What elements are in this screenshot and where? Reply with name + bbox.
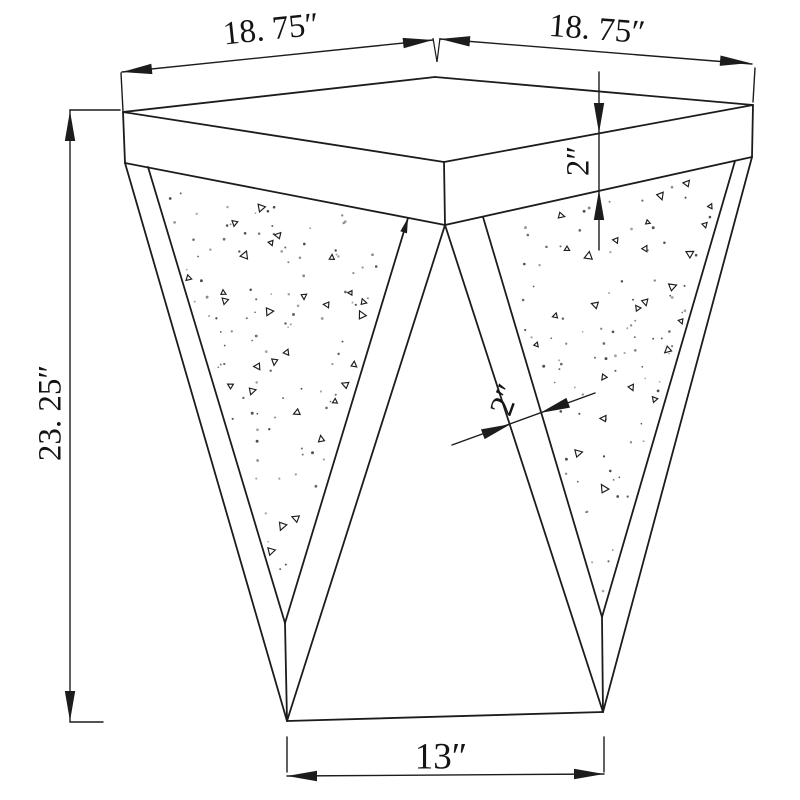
sparkle-dot — [608, 292, 610, 294]
sparkle-dot — [215, 317, 217, 319]
sparkle-dot — [634, 320, 636, 322]
sparkle-dot — [256, 413, 258, 415]
sparkle-dot — [209, 248, 212, 251]
sparkle-dot — [256, 440, 259, 443]
sparkle-dot — [352, 302, 354, 304]
apron-right-corner-edge — [752, 105, 753, 157]
sparkle-dot — [654, 279, 656, 281]
sparkle-dot — [582, 393, 584, 395]
sparkle-dot — [255, 335, 258, 338]
sparkle-dot — [292, 313, 295, 316]
sparkle-dot — [330, 401, 332, 403]
sparkle-dot — [220, 331, 222, 333]
sparkle-dot — [226, 224, 229, 227]
sparkle-dot — [523, 263, 526, 266]
sparkle-dot — [624, 352, 626, 354]
sparkle-dot — [355, 304, 357, 306]
sparkle-dot — [630, 324, 632, 326]
sparkle-dot — [265, 512, 267, 514]
sparkle-dot — [224, 345, 226, 347]
sparkle-dot — [249, 288, 252, 291]
sparkle-dot — [223, 363, 225, 365]
sparkle-dot — [288, 293, 291, 296]
sparkle-dot — [577, 481, 579, 483]
sparkle-dot — [206, 296, 209, 299]
sparkle-dot — [578, 229, 581, 232]
sparkle-dot — [232, 418, 234, 420]
sparkle-dot — [630, 228, 633, 231]
sparkle-dot — [192, 238, 195, 241]
sparkle-dot — [287, 326, 289, 328]
sparkle-dot — [560, 410, 563, 413]
sparkle-dot — [641, 366, 643, 368]
sparkle-dot — [609, 201, 611, 203]
sparkle-dot — [287, 261, 289, 263]
sparkle-dot — [335, 249, 337, 251]
sparkle-dot — [220, 364, 222, 366]
sparkle-dot — [524, 227, 527, 230]
sparkle-dot — [223, 238, 226, 241]
sparkle-dot — [565, 473, 567, 475]
sparkle-dot — [251, 412, 254, 415]
sparkle-dot — [559, 245, 561, 247]
sparkle-dot — [173, 221, 176, 224]
sparkle-dot — [268, 428, 270, 430]
sparkle-dot — [311, 451, 314, 454]
sparkle-dot — [169, 197, 172, 200]
sparkle-dot — [208, 315, 210, 317]
sparkle-dot — [550, 337, 552, 339]
sparkle-dot — [217, 366, 219, 368]
sparkle-dot — [684, 309, 687, 312]
sparkle-dot — [352, 272, 354, 274]
sparkle-dot — [602, 590, 605, 593]
sparkle-dot — [661, 337, 663, 339]
sparkle-dot — [607, 560, 609, 562]
sparkle-dot — [609, 470, 612, 473]
sparkle-dot — [657, 390, 660, 393]
sparkle-dot — [603, 455, 605, 457]
sparkle-dot — [284, 246, 286, 248]
sparkle-dot — [574, 386, 576, 388]
sparkle-dot — [560, 363, 563, 366]
sparkle-dot — [258, 233, 260, 235]
sparkle-dot — [325, 407, 328, 410]
dimension-diagram: 18. 75″ 18. 75″ 23. 25″ 2″ 2″ 13″ — [0, 0, 800, 800]
sparkle-dot — [612, 330, 615, 333]
sparkle-dot — [641, 200, 643, 202]
sparkle-dot — [632, 299, 634, 301]
sparkle-dot — [594, 357, 596, 359]
sparkle-dot — [669, 295, 671, 297]
sparkle-dot — [273, 206, 276, 209]
sparkle-dot — [331, 363, 333, 365]
sparkle-dot — [255, 478, 257, 480]
sparkle-dot — [197, 256, 199, 258]
sparkle-dot — [180, 192, 182, 194]
sparkle-dot — [538, 264, 540, 266]
sparkle-dot — [265, 350, 268, 353]
sparkle-dot — [626, 327, 628, 329]
sparkle-dot — [270, 293, 272, 295]
sparkle-dot — [530, 336, 532, 338]
sparkle-dot — [282, 397, 284, 399]
sparkle-dot — [194, 301, 196, 303]
sparkle-dot — [342, 222, 344, 224]
sparkle-dot — [290, 323, 292, 325]
sparkle-dot — [668, 330, 671, 333]
sparkle-dot — [588, 207, 591, 210]
sparkle-dot — [659, 381, 661, 383]
sparkle-dot — [320, 390, 322, 392]
sparkle-dot — [242, 397, 244, 399]
sparkle-dot — [671, 296, 674, 299]
sparkle-dot — [565, 343, 567, 345]
sparkle-dot — [562, 317, 565, 320]
sparkle-dot — [634, 336, 636, 338]
sparkle-dot — [255, 381, 258, 384]
sparkle-dot — [522, 299, 525, 302]
dim-label-overall-height: 23. 25″ — [35, 365, 68, 461]
sparkle-dot — [301, 448, 303, 450]
sparkle-dot — [256, 428, 259, 431]
sparkle-dot — [558, 359, 560, 361]
sparkle-dot — [652, 226, 655, 229]
sparkle-dot — [668, 353, 670, 355]
sparkle-dot — [618, 476, 620, 478]
sparkle-dot — [621, 280, 623, 282]
sparkle-dot — [634, 349, 637, 352]
sparkle-dot — [278, 478, 280, 480]
sparkle-dot — [361, 266, 363, 268]
sparkle-dot — [246, 317, 248, 319]
sparkle-dot — [302, 454, 304, 456]
sparkle-dot — [578, 413, 580, 415]
sparkle-dot — [600, 328, 602, 330]
sparkle-dot — [681, 312, 683, 314]
sparkle-dot — [614, 354, 617, 357]
sparkle-dot — [230, 223, 232, 225]
sparkle-dot — [609, 251, 611, 253]
sparkle-dot — [238, 250, 240, 252]
dim-label-base-width: 13″ — [415, 739, 467, 776]
sparkle-dot — [323, 458, 325, 460]
sparkle-dot — [254, 311, 256, 313]
sparkle-dot — [605, 357, 608, 360]
sparkle-dot — [663, 242, 666, 245]
sparkle-dot — [335, 394, 337, 396]
sparkle-dot — [302, 274, 305, 277]
sparkle-dot — [627, 495, 629, 497]
furniture-dimension-drawing — [0, 0, 800, 800]
sparkle-dot — [303, 243, 306, 246]
dim-label-top-thickness: 2″ — [563, 146, 596, 176]
sparkle-dot — [251, 340, 253, 342]
sparkle-dot — [671, 345, 673, 347]
sparkle-dot — [367, 297, 369, 299]
sparkle-dot — [683, 285, 685, 287]
sparkle-dot — [297, 304, 300, 307]
sparkle-dot — [612, 549, 614, 551]
sparkle-dot — [200, 279, 203, 282]
sparkle-dot — [545, 246, 548, 249]
sparkle-dot — [375, 265, 378, 268]
sparkle-dot — [554, 382, 556, 384]
sparkle-dot — [644, 378, 646, 380]
sparkle-dot — [671, 186, 674, 189]
sparkle-dot — [616, 495, 619, 498]
dim-label-top-right-width: 18. 75″ — [548, 10, 647, 50]
sparkle-dot — [231, 330, 233, 332]
sparkle-dot — [603, 342, 606, 345]
sparkle-dot — [558, 368, 560, 370]
sparkle-dot — [613, 479, 615, 481]
sparkle-dot — [285, 564, 287, 566]
sparkle-dot — [371, 253, 374, 256]
sparkle-dot — [684, 197, 686, 199]
sparkle-dot — [586, 511, 588, 513]
sparkle-dot — [643, 440, 645, 442]
sparkle-dot — [341, 214, 343, 216]
sparkle-dot — [255, 212, 257, 214]
sparkle-dot — [269, 369, 271, 371]
sparkle-dot — [244, 232, 247, 235]
sparkle-dot — [695, 254, 698, 257]
sparkle-dot — [256, 459, 259, 462]
sparkle-dot — [542, 365, 545, 368]
sparkle-dot — [591, 561, 593, 563]
sparkle-dot — [314, 485, 317, 488]
sparkle-dot — [295, 473, 297, 475]
sparkle-dot — [267, 541, 269, 543]
sparkle-dot — [652, 338, 654, 340]
sparkle-dot — [321, 317, 324, 320]
sparkle-dot — [267, 210, 270, 213]
right-leg-tip-edge — [602, 617, 603, 712]
sparkle-dot — [565, 458, 568, 461]
sparkle-dot — [583, 210, 586, 213]
sparkle-dot — [279, 568, 281, 570]
sparkle-dot — [299, 257, 302, 260]
sparkle-dot — [582, 331, 584, 333]
sparkle-dot — [186, 269, 188, 271]
sparkle-dot — [284, 322, 286, 324]
sparkle-dot — [226, 206, 228, 208]
sparkle-dot — [709, 216, 712, 219]
sparkle-dot — [344, 291, 347, 294]
sparkle-dot — [255, 298, 257, 300]
sparkle-dot — [614, 370, 616, 372]
sparkle-dot — [533, 286, 535, 288]
sparkle-dot — [274, 416, 276, 418]
sparkle-dot — [271, 225, 273, 227]
sparkle-dot — [196, 213, 198, 215]
sparkle-dot — [524, 329, 526, 331]
sparkle-dot — [336, 254, 338, 256]
sparkle-dot — [280, 250, 283, 253]
apron-front-corner-edge — [444, 162, 445, 225]
sparkle-dot — [641, 423, 643, 425]
sparkle-dot — [342, 341, 344, 343]
sparkle-dot — [309, 227, 311, 229]
drawing-background — [0, 0, 800, 800]
sparkle-dot — [630, 441, 632, 443]
sparkle-dot — [527, 234, 530, 237]
sparkle-dot — [337, 255, 339, 257]
sparkle-dot — [337, 353, 340, 356]
sparkle-dot — [301, 388, 303, 390]
